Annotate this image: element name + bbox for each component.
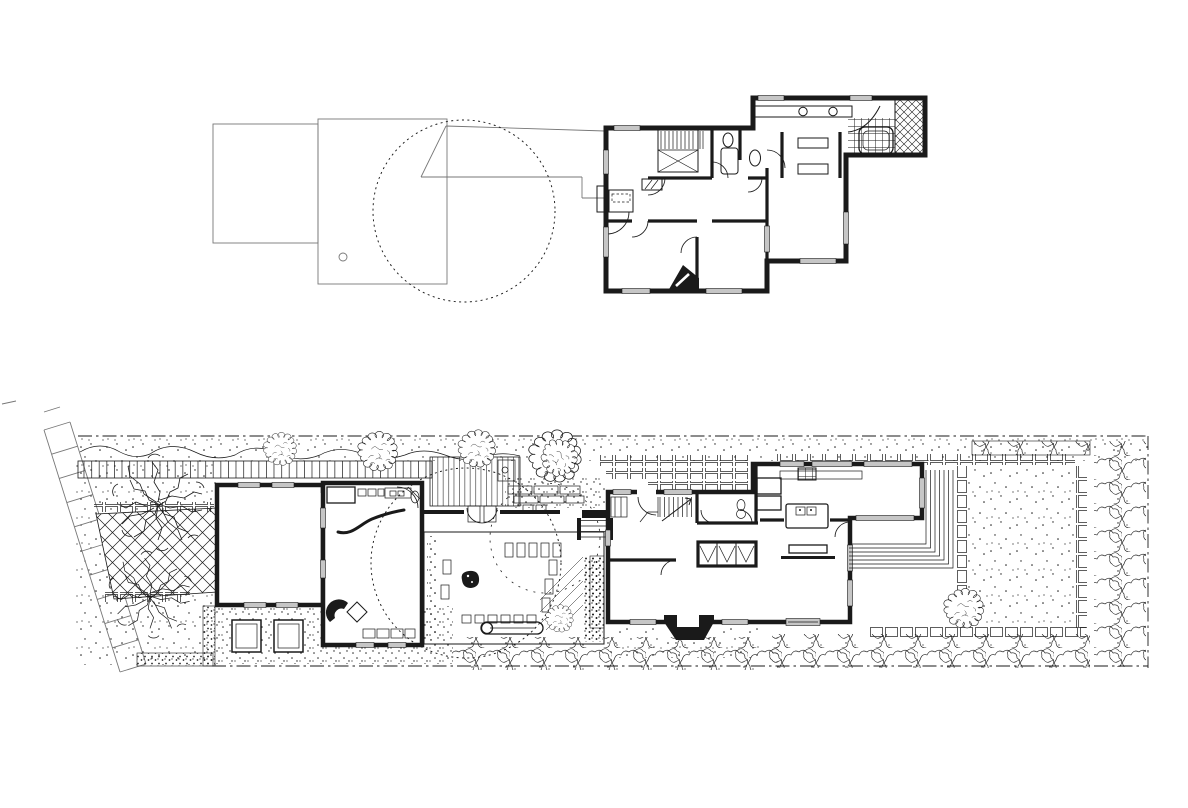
low-hedge	[137, 653, 213, 666]
window	[604, 150, 609, 174]
firebox	[677, 615, 699, 627]
garage	[217, 483, 326, 608]
shrub	[546, 605, 574, 632]
boulder	[462, 571, 479, 588]
window	[244, 603, 266, 608]
brick-border	[94, 502, 214, 512]
survey-ticks	[2, 401, 60, 412]
garage-walls	[217, 485, 323, 605]
roof-connector-lines	[421, 126, 606, 198]
window	[800, 259, 836, 264]
door-leaf	[484, 506, 496, 522]
roof-outlines	[213, 119, 606, 302]
scanned-plan-page: Scanned black-and-white architectural dr…	[0, 0, 1188, 808]
lattice-court	[94, 502, 217, 602]
paver-cluster	[598, 455, 748, 466]
window	[850, 96, 872, 101]
window	[276, 603, 298, 608]
window	[604, 227, 609, 257]
porch-edge	[582, 510, 608, 518]
lawn	[968, 467, 1076, 625]
garage-roof-outline	[213, 124, 318, 243]
window	[758, 96, 784, 101]
stepping-stones	[441, 543, 561, 623]
window	[272, 483, 294, 488]
window	[321, 560, 326, 578]
studio	[321, 483, 423, 648]
tree-canopy-dashed-circle	[373, 120, 555, 302]
window	[765, 226, 770, 252]
site-plan: Ground floor and site plan of the long g…	[2, 401, 1148, 672]
window	[614, 126, 640, 131]
glass-wall	[856, 516, 914, 521]
window	[356, 643, 374, 648]
main-house	[577, 462, 925, 641]
shower-crosshatch	[895, 100, 925, 153]
window	[321, 508, 326, 528]
roof-vent	[339, 253, 347, 261]
window	[388, 643, 406, 648]
window	[622, 289, 650, 294]
studio-roof-outline	[318, 119, 447, 284]
paver-cluster	[606, 468, 750, 479]
dining-bench	[781, 556, 835, 559]
range	[798, 468, 816, 480]
studio-walls	[323, 483, 422, 645]
window	[238, 483, 260, 488]
clipped-hedge	[972, 441, 1090, 455]
door-leaf	[468, 506, 480, 522]
round-tree	[458, 430, 496, 467]
window	[706, 289, 742, 294]
low-hedge	[203, 606, 215, 666]
upper-floor-plan: Upper floor plan with pencil roof outlin…	[213, 96, 925, 303]
ground-cover	[452, 637, 778, 670]
double-door-swing	[467, 508, 497, 523]
floor-plan-drawing: Scanned black-and-white architectural dr…	[0, 0, 1188, 808]
shrub-border	[772, 634, 1090, 668]
boundary-hedge	[1094, 441, 1146, 667]
window	[844, 212, 849, 244]
